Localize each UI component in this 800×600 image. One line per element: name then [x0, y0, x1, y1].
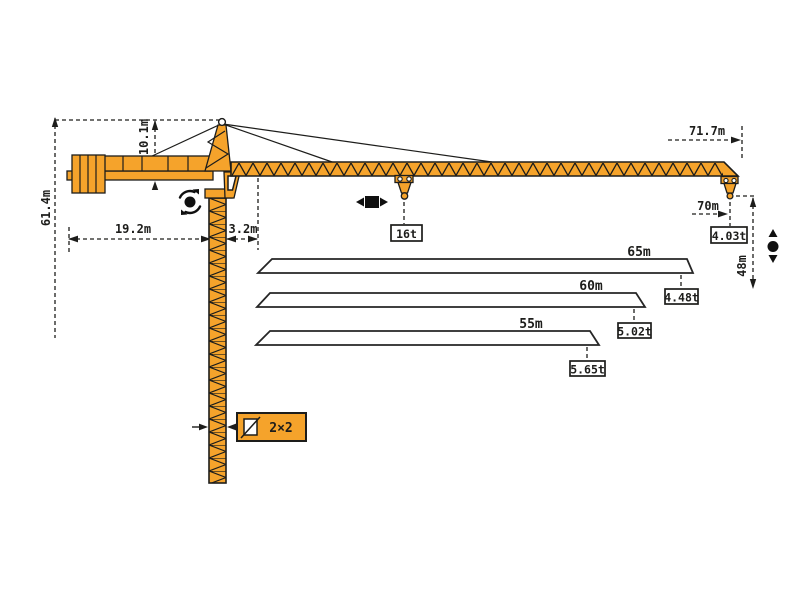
diagram-canvas: 61.4m 10.1m 19.2m 3.2m 71.7m 70m 4 — [0, 0, 800, 600]
label-rear-offset: 3.2m — [229, 222, 258, 236]
variant-load-label: 5.65t — [570, 362, 605, 376]
jib-truss-lattice — [232, 163, 723, 176]
mast-cross-section-icon — [241, 417, 260, 438]
slewing-dot — [185, 197, 196, 208]
jib-tie-cable-2 — [223, 124, 492, 162]
trolley-travel-icon — [356, 196, 388, 208]
arrow-up — [750, 197, 756, 207]
counter-jib — [67, 155, 213, 193]
dim-counter-jib-radius: 19.2m — [68, 222, 211, 252]
arrow-right — [718, 211, 728, 218]
variant-load-label: 5.02t — [617, 324, 652, 338]
hook-block — [398, 183, 411, 194]
slewing-rotation-icon — [180, 189, 200, 215]
tower-mast-lattice — [209, 198, 226, 483]
hook-icon — [727, 193, 733, 199]
sheave-icon — [398, 177, 402, 181]
arrow-down — [750, 279, 756, 289]
sheave-icon — [407, 177, 411, 181]
arrow-right — [199, 424, 208, 431]
main-jib — [231, 162, 738, 176]
crane-diagram: 61.4m 10.1m 19.2m 3.2m 71.7m 70m 4 — [0, 0, 800, 600]
jib-variant-60m: 60m 5.02t — [257, 279, 652, 338]
trolley-hook-mid: 16t — [391, 176, 422, 242]
variant-length-label: 60m — [579, 279, 603, 294]
arrow-down — [769, 255, 778, 263]
label-mast-section: 2×2 — [269, 421, 292, 436]
hoist-dot — [768, 241, 779, 252]
arrow-up-lower — [152, 181, 158, 190]
variant-jib-shape — [258, 259, 693, 273]
arrow-up — [52, 117, 58, 127]
slewing-arc-top — [180, 191, 195, 197]
arrow-left — [356, 198, 364, 207]
dim-max-jib-length: 71.7m — [668, 124, 742, 160]
variant-length-label: 55m — [519, 317, 543, 332]
hook-icon — [401, 193, 407, 199]
label-max-load: 16t — [396, 227, 417, 241]
jib-tie-cable-1 — [223, 124, 335, 163]
variant-jib-shape — [256, 331, 599, 345]
sheave-icon — [732, 178, 736, 182]
dim-max-working-radius: 70m — [692, 199, 728, 217]
label-total-height: 61.4m — [39, 190, 53, 226]
apex-pin — [219, 119, 226, 126]
arrow-left — [226, 236, 236, 243]
hoist-up-down-icon — [768, 229, 779, 263]
variant-length-label: 65m — [627, 245, 651, 260]
hook-block — [724, 184, 736, 194]
sheave-icon — [724, 178, 728, 182]
label-tip-load: 4.03t — [712, 229, 747, 243]
label-max-working-radius: 70m — [697, 199, 719, 213]
label-counter-jib-radius: 19.2m — [115, 222, 151, 236]
ballast-row — [104, 156, 210, 171]
jib-variant-55m: 55m 5.65t — [256, 317, 605, 376]
arrow-right — [731, 137, 741, 144]
arrow-right — [248, 236, 258, 243]
variant-jib-shape — [257, 293, 645, 307]
label-tower-head-height: 10.1m — [137, 119, 151, 155]
slewing-arc-bottom — [186, 207, 201, 213]
arrow-right — [380, 198, 388, 207]
arrow-up — [769, 229, 778, 237]
label-hook-height: 48m — [735, 255, 749, 277]
variant-load-label: 4.48t — [664, 290, 699, 304]
arrow-up — [152, 120, 158, 130]
trolley-square — [365, 196, 379, 208]
arrow-left — [227, 424, 236, 431]
label-max-jib-length: 71.7m — [689, 124, 725, 138]
